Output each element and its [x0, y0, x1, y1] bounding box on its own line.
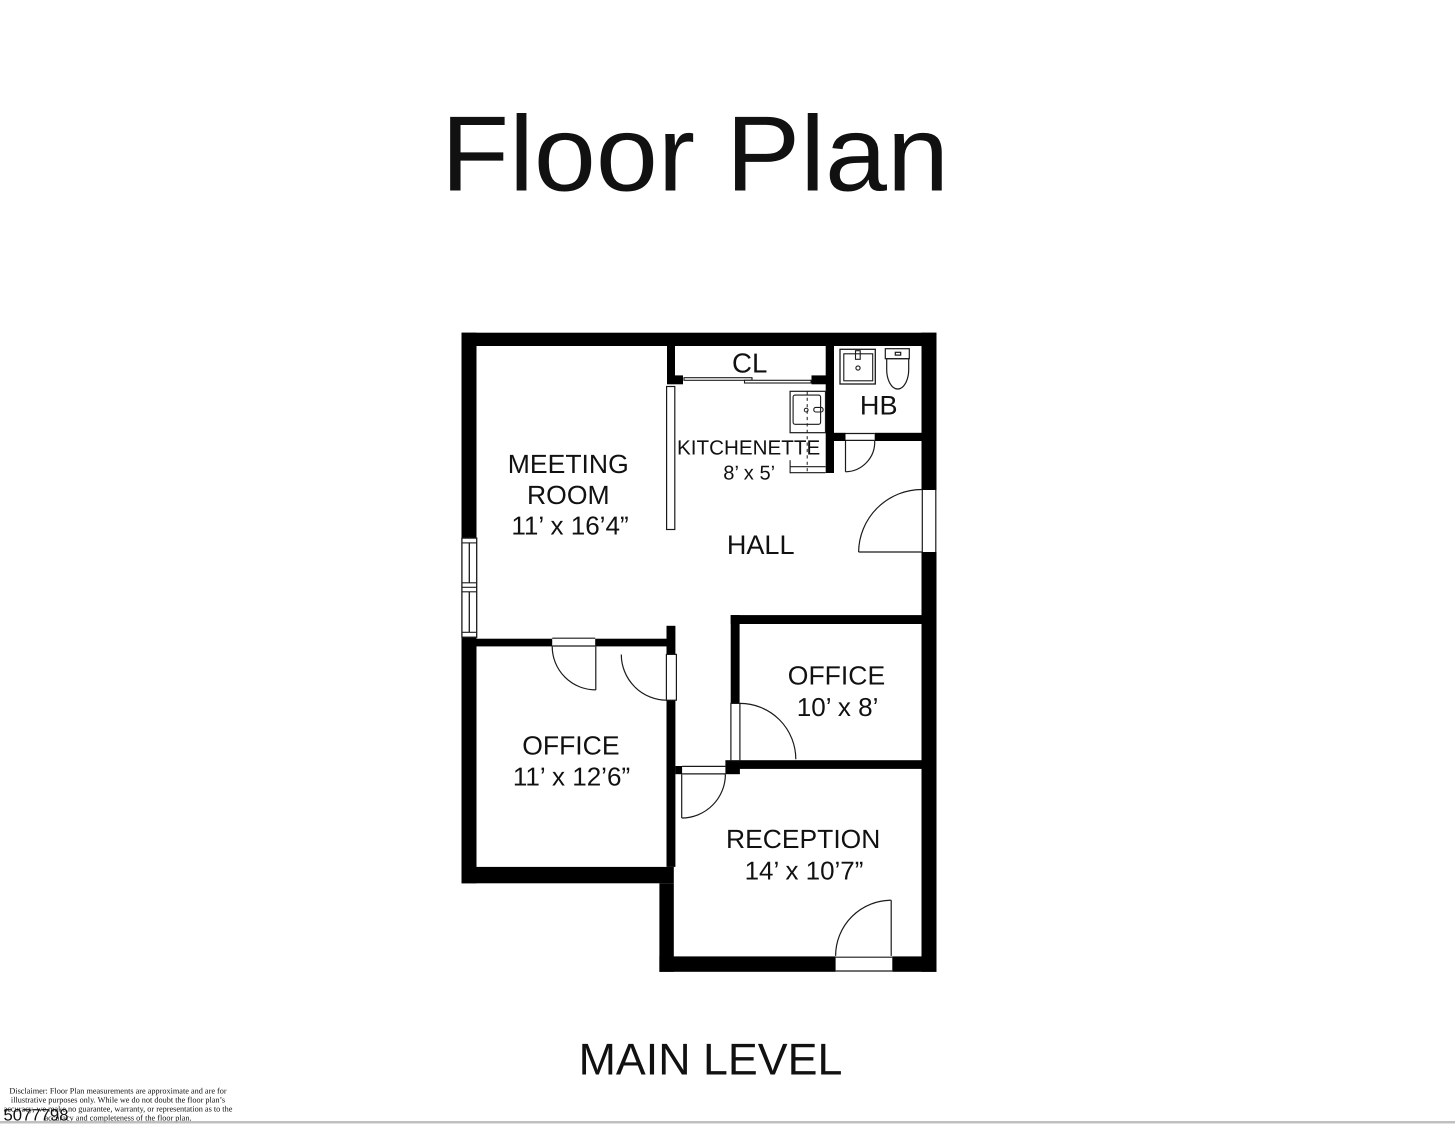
svg-text:OFFICE: OFFICE [788, 661, 885, 691]
svg-text:OFFICE: OFFICE [522, 731, 619, 761]
svg-text:Disclaimer: Floor Plan measure: Disclaimer: Floor Plan measurements are … [9, 1087, 227, 1096]
svg-text:11’ x 16’4”: 11’ x 16’4” [511, 513, 628, 541]
svg-text:MAIN LEVEL: MAIN LEVEL [579, 1035, 843, 1084]
svg-text:HB: HB [860, 391, 898, 421]
svg-text:CL: CL [732, 348, 767, 379]
svg-text:Floor Plan: Floor Plan [441, 94, 949, 214]
svg-text:8’ x 5’: 8’ x 5’ [723, 463, 775, 485]
svg-text:ROOM: ROOM [527, 480, 610, 510]
svg-text:MEETING: MEETING [508, 449, 629, 479]
svg-text:11’ x 12’6”: 11’ x 12’6” [513, 764, 630, 792]
svg-text:10’ x 8’: 10’ x 8’ [797, 694, 879, 722]
svg-text:illustrative purposes only. Wh: illustrative purposes only. While we do … [11, 1096, 225, 1105]
svg-text:14’ x 10’7”: 14’ x 10’7” [745, 858, 864, 886]
svg-text:HALL: HALL [727, 530, 795, 560]
svg-text:KITCHENETTE: KITCHENETTE [677, 437, 820, 460]
svg-text:RECEPTION: RECEPTION [726, 824, 880, 854]
